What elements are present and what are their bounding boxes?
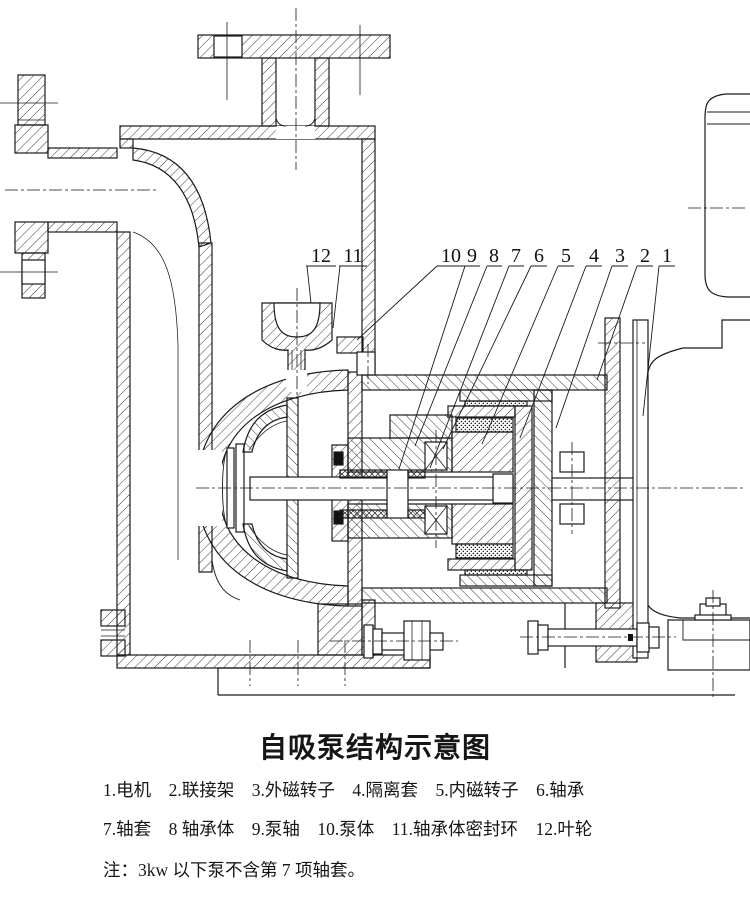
figure-note: 注：3kw 以下泵不含第 7 项轴套。 (103, 857, 365, 882)
callout-10: 10 (441, 245, 461, 267)
inlet-flange (0, 75, 117, 298)
parts-legend-row-2: 7.轴套 8 轴承体 9.泵轴 10.泵体 11.轴承体密封环 12.叶轮 (103, 816, 592, 841)
callout-12: 12 (311, 245, 331, 267)
parts-legend-row-1: 1.电机 2.联接架 3.外磁转子 4.隔离套 5.内磁转子 6.轴承 (103, 777, 584, 802)
frame-foot-bolt (528, 621, 659, 654)
pump-structure-figure: 12 11 10 9 8 7 6 5 4 3 2 1 自吸泵结构示意图 1.电机… (0, 0, 750, 909)
motor-body (648, 94, 750, 618)
callout-3: 3 (615, 245, 625, 267)
motor-flange (633, 320, 648, 658)
callout-8: 8 (489, 245, 499, 267)
pump-cross-section-diagram: 12 11 10 9 8 7 6 5 4 3 2 1 (0, 0, 750, 730)
callout-11: 11 (343, 245, 362, 267)
callout-5: 5 (561, 245, 571, 267)
callout-4: 4 (589, 245, 599, 267)
figure-title: 自吸泵结构示意图 (0, 726, 750, 766)
base (218, 603, 735, 695)
callout-6: 6 (534, 245, 544, 267)
callout-9: 9 (467, 245, 477, 267)
callout-2: 2 (640, 245, 650, 267)
volute-foot-bolt (364, 621, 443, 660)
motor-foot (668, 598, 750, 670)
callout-1: 1 (662, 245, 672, 267)
discharge-flange (198, 22, 390, 126)
callout-7: 7 (511, 245, 521, 267)
